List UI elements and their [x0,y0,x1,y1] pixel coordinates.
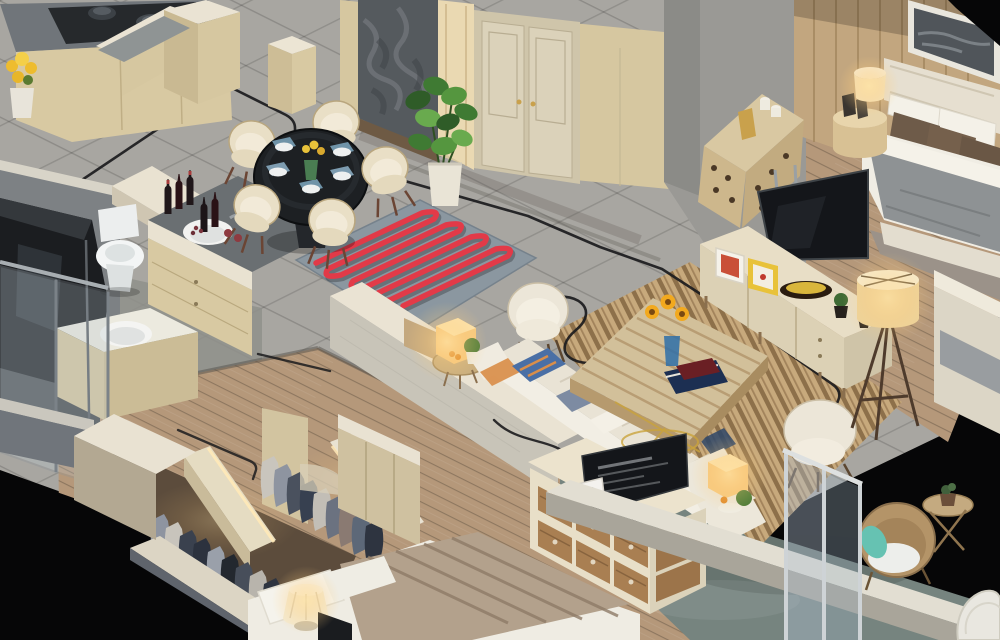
plate [333,172,351,181]
toilet-seat-inner [105,244,135,262]
dresser-hole [729,197,735,203]
dresser-hole [711,165,717,171]
plate [302,185,320,194]
glass-pane [826,472,858,640]
entry-double-door [474,10,580,184]
console-knob [818,338,822,342]
center-flower [302,145,310,153]
wine-glass [234,234,242,242]
center-flower [310,141,319,150]
wine-glass [224,229,232,237]
flower [25,62,37,74]
sink2-inner [107,327,145,345]
candle-white [760,100,770,110]
dresser-hole [725,175,731,181]
door-knob-left [517,100,522,105]
pot-lid [93,7,111,15]
dresser-hole [755,185,761,191]
drawer-knob [194,302,198,306]
drawer-knob [194,280,198,284]
tripod-lamp-glow [842,252,934,344]
grape [191,231,195,235]
succulent-pot [940,494,956,506]
cube-lamp-glow [407,302,487,382]
door-knob-right [531,102,536,107]
sunflower-center [679,311,685,317]
plate [275,143,293,152]
sunflower-center [649,309,655,315]
succulent [948,483,956,491]
plate [269,168,287,177]
drawer-pull [553,540,558,545]
kitchen-column-face [268,44,292,114]
toilet-tank [98,204,139,242]
plate [333,148,351,157]
gray-wall-shadow-strip [664,0,700,196]
dresser-hole [783,153,789,159]
flower-pot [10,88,34,118]
glass-door-panels [783,450,862,640]
center-flower [317,147,325,155]
plant-pot [428,164,462,206]
apartment-isometric-render [0,0,1000,640]
flower [12,71,24,83]
bedside-lamp-glow [839,56,899,116]
leaf [23,75,33,85]
bowl-inner-yellow [786,282,826,294]
grape [194,226,198,230]
drawer-pull [629,545,634,550]
island-arm-face-right [198,12,240,104]
candle-white [771,108,781,117]
glass-pane [788,456,822,640]
armchair-seat [516,319,560,341]
render-canvas [0,0,1000,640]
bottle-cap [167,180,170,184]
flower-vase [664,336,680,366]
frame-red-bird [760,274,766,280]
drawer-pull [629,580,634,585]
bottle-cap [189,171,192,175]
kitchen-column-side [292,46,316,114]
dresser-hole [713,187,719,193]
door-panel-left [482,21,524,172]
sunflower-center [665,299,671,305]
grape [199,229,203,233]
cube-lamp2-glow [691,436,767,512]
console-knob [818,354,822,358]
pleated-lamp-glow [272,566,340,634]
drawer-pull [591,560,596,565]
center-vase [304,160,318,180]
